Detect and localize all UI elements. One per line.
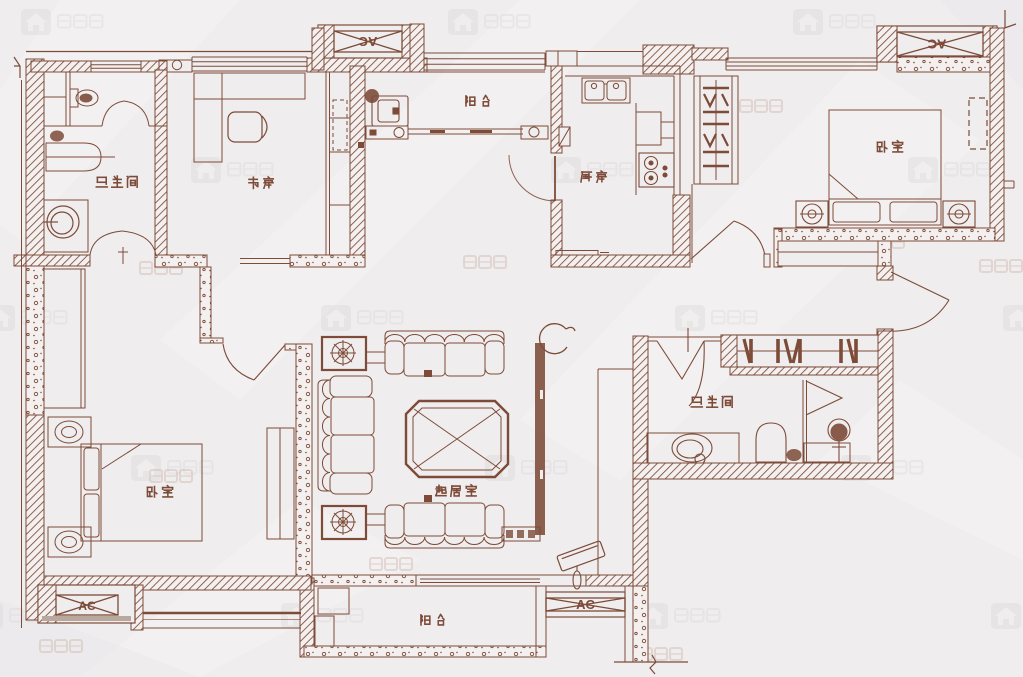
svg-text:AC: AC (78, 599, 96, 613)
svg-text:AC: AC (927, 37, 946, 52)
svg-text:AC: AC (358, 34, 377, 49)
svg-text:AC: AC (576, 597, 595, 612)
